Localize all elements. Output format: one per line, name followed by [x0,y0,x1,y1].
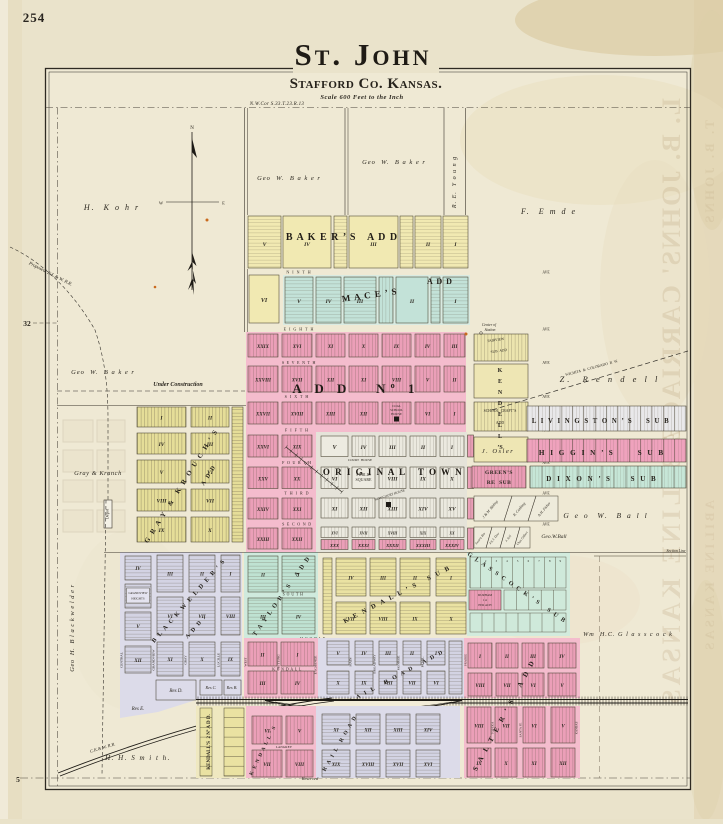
svg-text:XXX: XXX [329,543,340,548]
svg-text:III: III [388,445,396,451]
svg-text:X: X [199,658,204,663]
svg-text:HEIGHTS: HEIGHTS [131,597,145,601]
svg-text:DURHAM: DURHAM [478,593,492,597]
svg-text:1 st: 1 st [483,598,487,602]
svg-text:Wm H.C. G l a s s c o c k: Wm H.C. G l a s s c o c k [583,631,673,638]
svg-text:XI: XI [331,507,339,513]
svg-text:AVE: AVE [542,395,550,399]
svg-text:XIII: XIII [325,413,336,418]
svg-text:XVII: XVII [358,531,368,535]
svg-text:Depot: Depot [105,508,110,519]
svg-text:Geo W. B a k e r: Geo W. B a k e r [257,175,321,182]
svg-text:A D D Nº 1: A D D Nº 1 [292,381,419,396]
svg-text:XXVI: XXVI [256,446,270,451]
svg-text:S O U T H: S O U T H [283,593,304,597]
svg-text:Scale 600 Feet to the Inch: Scale 600 Feet to the Inch [320,94,403,101]
svg-text:XXIII: XXIII [256,538,271,543]
svg-text:XX: XX [293,477,301,482]
svg-text:E: E [222,201,225,206]
svg-text:PRAIRIE: PRAIRIE [464,654,468,666]
svg-text:RE SUB: RE SUB [487,480,512,486]
svg-text:AVE: AVE [542,328,550,332]
svg-text:XI: XI [327,345,334,350]
svg-text:XIX: XIX [292,446,302,451]
svg-text:III: III [259,682,267,687]
svg-text:Res E.: Res E. [131,707,145,712]
svg-text:VIII: VIII [378,618,388,623]
svg-text:IV: IV [424,345,431,350]
svg-text:VII: VII [206,499,215,505]
svg-text:N I N T H: N I N T H [286,270,311,275]
svg-text:’S: ’S [497,445,503,451]
svg-text:Res B.: Res B. [226,685,238,690]
svg-text:Geo.W.Ball: Geo.W.Ball [541,534,567,540]
svg-text:IV: IV [347,577,354,582]
svg-text:XVI: XVI [423,763,434,768]
svg-text:Reserved: Reserved [301,776,319,781]
svg-text:XIX: XIX [331,763,341,768]
svg-text:IX: IX [419,476,426,482]
svg-text:L: L [498,423,502,429]
svg-text:VIII: VIII [226,615,236,620]
svg-text:HOUSE: HOUSE [391,412,402,416]
svg-text:PER ACH: PER ACH [478,603,492,607]
svg-text:PEARL: PEARL [421,657,425,668]
svg-text:F I F T H: F I F T H [285,428,309,433]
svg-text:XII: XII [359,507,369,513]
svg-text:AVE: AVE [542,523,550,527]
svg-text:B A K E R ’ S A D D: B A K E R ’ S A D D [286,232,398,243]
svg-text:XXVII: XXVII [255,413,271,418]
svg-text:XXIX: XXIX [256,345,270,350]
svg-text:XVIII: XVIII [361,763,376,768]
svg-text:Center of: Center of [482,323,497,327]
svg-text:VI: VI [261,298,268,304]
svg-text:XXV: XXV [257,477,269,482]
svg-text:VII: VII [263,763,271,768]
svg-text:XXIV: XXIV [256,508,270,513]
svg-text:XI: XI [166,658,173,663]
svg-text:IV: IV [134,567,141,572]
svg-text:IV: IV [360,652,367,657]
svg-text:S E V E N T H: S E V E N T H [282,360,316,365]
svg-text:III: III [379,577,387,582]
svg-text:E: E [498,412,502,418]
svg-text:CENTRAL: CENTRAL [120,652,124,668]
svg-text:F. E m d e: F. E m d e [520,207,577,216]
svg-text:KANSAS: KANSAS [575,721,579,734]
svg-text:N.W.Cor S.33.T.23.R.13: N.W.Cor S.33.T.23.R.13 [249,102,305,107]
svg-text:L: L [498,434,502,440]
svg-text:XII: XII [558,762,567,767]
svg-text:XXII: XXII [291,538,304,543]
svg-text:S E C O N D: S E C O N D [282,522,312,527]
svg-text:TOPEKA: TOPEKA [491,721,495,734]
svg-text:VIII: VIII [474,725,484,730]
svg-text:XVIII: XVIII [387,531,398,535]
svg-text:WEST: WEST [244,656,248,666]
svg-text:SANTA FE: SANTA FE [519,723,523,738]
svg-text:GRAY: GRAY [184,655,188,665]
svg-text:NUTTING: NUTTING [277,654,281,670]
svg-text:SQUARE: SQUARE [355,477,372,482]
svg-text:IX: IX [411,618,418,623]
svg-text:XVII: XVII [392,763,405,768]
svg-text:E I G H T H: E I G H T H [284,327,315,332]
svg-text:VI: VI [332,476,339,482]
svg-text:XV: XV [447,507,457,513]
svg-text:X: X [503,762,508,767]
svg-text:VIII: VIII [475,684,485,689]
svg-text:AVE: AVE [542,361,550,365]
svg-text:ABILINE KANSAS: ABILINE KANSAS [702,500,717,653]
svg-text:K: K [498,368,503,374]
svg-text:XIV: XIV [423,729,433,734]
svg-text:IV: IV [294,682,301,687]
svg-text:II: II [409,299,415,305]
svg-text:XI: XI [530,762,537,767]
svg-text:H. H. S m i t h.: H. H. S m i t h. [104,754,171,762]
svg-text:GRANDVIEW: GRANDVIEW [128,591,147,595]
svg-text:XII: XII [363,729,372,734]
svg-text:LUCILLE: LUCILLE [217,653,221,667]
svg-text:E: E [498,379,502,385]
svg-text:L I V I N G S T O N ’ S S U: L I V I N G S T O N ’ S S U B [532,418,670,425]
svg-text:EXCHANGE: EXCHANGE [314,656,318,675]
svg-text:XII: XII [359,413,368,418]
svg-text:T. B. JOHNS: T. B. JOHNS [702,120,717,226]
svg-text:AVE: AVE [542,271,550,275]
svg-text:X: X [449,476,454,482]
svg-text:XXXII: XXXII [385,543,399,548]
svg-text:II: II [420,445,426,451]
svg-text:XXXIII: XXXIII [415,543,431,548]
svg-text:H I G G I N ’ S S U B: H I G G I N ’ S S U B [539,449,665,457]
svg-text:XII: XII [133,659,142,664]
svg-text:X: X [361,345,366,350]
svg-text:LANGREY: LANGREY [276,745,293,749]
svg-text:Res C.: Res C. [205,685,217,690]
svg-text:Station: Station [485,328,496,332]
svg-text:KENDALL’S 2 Nº A D D.: KENDALL’S 2 Nº A D D. [206,714,212,770]
svg-text:IX: IX [227,658,234,663]
svg-text:XIX: XIX [419,531,427,535]
svg-text:VII: VII [503,684,511,689]
svg-text:Under Construction: Under Construction [153,382,203,388]
svg-text:XIII: XIII [392,729,403,734]
svg-text:XXI: XXI [292,508,303,513]
svg-text:XIV: XIV [417,507,429,513]
svg-text:G e o W. B a l l: G e o W. B a l l [563,511,648,520]
svg-text:IV: IV [295,616,302,621]
svg-text:D: D [498,401,503,407]
svg-text:VII: VII [408,682,416,687]
svg-text:XVI: XVI [292,345,303,350]
svg-text:Geo W. B a k e r: Geo W. B a k e r [71,369,135,376]
svg-text:II: II [207,416,213,422]
svg-text:L. B. JOHNS' CARRIAGE: L. B. JOHNS' CARRIAGE [657,98,686,443]
svg-text:S I X T H: S I X T H [285,394,310,399]
svg-text:XVI: XVI [330,531,338,535]
svg-text:St. John: St. John [294,37,431,72]
svg-text:VIII: VIII [295,763,305,768]
svg-text:D I X O N ’ S S U B: D I X O N ’ S S U B [546,475,657,483]
svg-text:Geo H. B l a c k w e l d e r: Geo H. B l a c k w e l d e r [69,584,76,671]
svg-text:Stafford Co. Kansas.: Stafford Co. Kansas. [290,76,443,92]
svg-text:X: X [448,618,453,623]
svg-text:N: N [190,126,194,131]
svg-text:XI: XI [332,729,339,734]
svg-text:MONROE: MONROE [397,656,401,671]
svg-text:IX: IX [360,682,367,687]
svg-text:32: 32 [23,319,31,328]
svg-text:XIII: XIII [386,507,398,513]
svg-text:GRANDVIEW: GRANDVIEW [152,649,156,671]
svg-text:IX: IX [393,345,400,350]
svg-text:H. K o h r: H. K o h r [83,203,140,212]
svg-text:III: III [384,652,392,657]
svg-text:COURT HOUSE: COURT HOUSE [348,458,372,462]
svg-text:X: X [335,682,340,687]
svg-text:VIII: VIII [387,476,398,482]
svg-text:O R I G I N A L T O W N: O R I G I N A L T O W N [323,467,463,477]
svg-text:T H I R D: T H I R D [284,491,309,496]
svg-text:XX: XX [448,531,455,535]
svg-text:BROADWAY: BROADWAY [373,654,377,674]
svg-text:AVE: AVE [542,492,550,496]
svg-text:VII: VII [502,725,510,730]
svg-text:R. E. Y o u n g: R. E. Y o u n g [452,156,458,209]
svg-text:XXXI: XXXI [357,543,369,548]
svg-text:MAIN: MAIN [349,657,353,667]
svg-text:X: X [207,528,212,534]
svg-text:Geo W. B a k e r: Geo W. B a k e r [362,159,426,166]
svg-text:II: II [425,242,431,248]
svg-text:XXXIV: XXXIV [444,543,460,548]
svg-text:III: III [166,573,174,578]
svg-text:A D D: A D D [427,277,453,286]
svg-text:5: 5 [16,775,20,784]
svg-text:Res D.: Res D. [168,689,182,694]
svg-text:IV: IV [558,655,565,660]
svg-text:254: 254 [23,10,46,25]
svg-text:III: III [451,345,459,350]
svg-text:GREEN’S: GREEN’S [485,470,513,476]
svg-text:XXVIII: XXVIII [254,379,272,384]
svg-text:Z. R e n d e l l: Z. R e n d e l l [560,374,661,384]
svg-text:XVIII: XVIII [290,413,305,418]
svg-text:N: N [498,390,503,396]
